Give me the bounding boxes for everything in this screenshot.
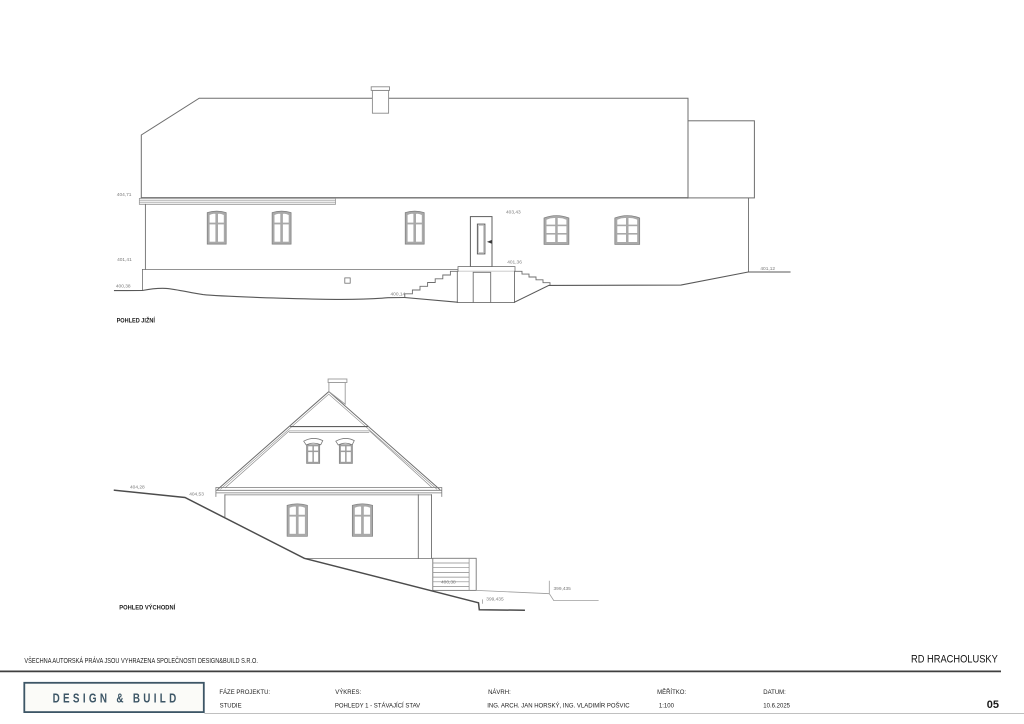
svg-text:401,41: 401,41: [117, 257, 132, 263]
svg-text:400,14: 400,14: [391, 291, 406, 297]
svg-text:DESIGN & BUILD: DESIGN & BUILD: [53, 692, 180, 706]
svg-text:STUDIE: STUDIE: [220, 703, 242, 709]
svg-text:MĚŘÍTKO:: MĚŘÍTKO:: [657, 688, 686, 696]
svg-text:404,28: 404,28: [130, 485, 145, 491]
svg-text:403,43: 403,43: [506, 209, 521, 215]
svg-text:POHLEDY 1 - STÁVAJÍCÍ STAV: POHLEDY 1 - STÁVAJÍCÍ STAV: [335, 702, 420, 709]
svg-text:FÁZE PROJEKTU:: FÁZE PROJEKTU:: [219, 689, 270, 696]
svg-text:NÁVRH:: NÁVRH:: [488, 689, 511, 696]
svg-text:DATUM:: DATUM:: [763, 690, 786, 696]
svg-text:10.6.2025: 10.6.2025: [763, 703, 790, 709]
svg-text:404,53: 404,53: [189, 491, 204, 497]
svg-text:ING. ARCH. JAN HORSKÝ, ING. VL: ING. ARCH. JAN HORSKÝ, ING. VLADIMÍR POŠ…: [487, 702, 630, 709]
svg-text:POHLED VÝCHODNÍ: POHLED VÝCHODNÍ: [119, 603, 175, 612]
svg-text:05: 05: [987, 699, 999, 711]
svg-text:399,435: 399,435: [486, 596, 504, 602]
svg-text:VŠECHNA AUTORSKÁ PRÁVA JSOU VY: VŠECHNA AUTORSKÁ PRÁVA JSOU VYHRAZENA SP…: [24, 656, 258, 665]
svg-text:RD HRACHOLUSKY: RD HRACHOLUSKY: [911, 654, 998, 666]
svg-text:400,38: 400,38: [441, 579, 456, 585]
svg-text:1:100: 1:100: [659, 703, 675, 709]
svg-text:VÝKRES:: VÝKRES:: [335, 689, 361, 696]
svg-text:400,38: 400,38: [116, 283, 131, 289]
svg-text:401,36: 401,36: [507, 260, 522, 266]
svg-text:404,71: 404,71: [117, 192, 132, 198]
svg-text:399,435: 399,435: [554, 586, 572, 592]
svg-text:POHLED JIŽNÍ: POHLED JIŽNÍ: [117, 315, 155, 324]
svg-text:401,12: 401,12: [760, 266, 775, 272]
